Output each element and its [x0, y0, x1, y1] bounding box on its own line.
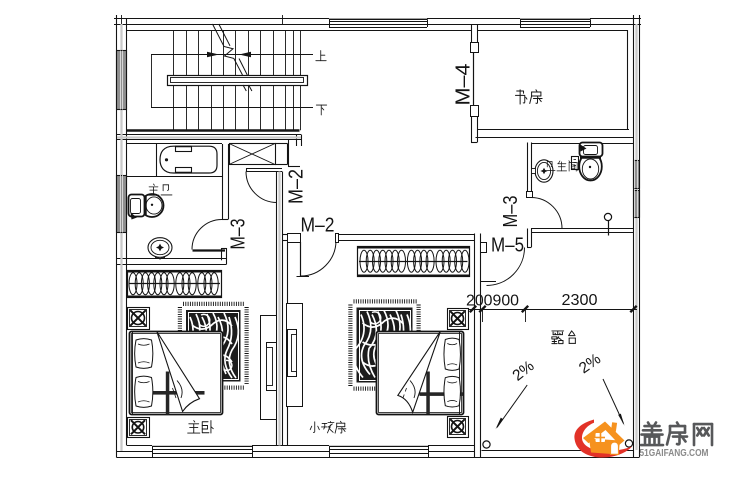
svg-text:M–3: M–3: [228, 219, 250, 250]
svg-text:200900: 200900: [466, 293, 519, 310]
svg-text:M–3: M–3: [500, 196, 522, 228]
svg-text:M–5: M–5: [491, 235, 524, 257]
svg-text:M–2: M–2: [301, 215, 335, 237]
svg-text:2300: 2300: [562, 292, 598, 309]
svg-text:51GAIFANG.COM: 51GAIFANG.COM: [640, 447, 709, 459]
svg-text:M–2: M–2: [286, 169, 308, 204]
svg-text:M–4: M–4: [453, 64, 475, 106]
